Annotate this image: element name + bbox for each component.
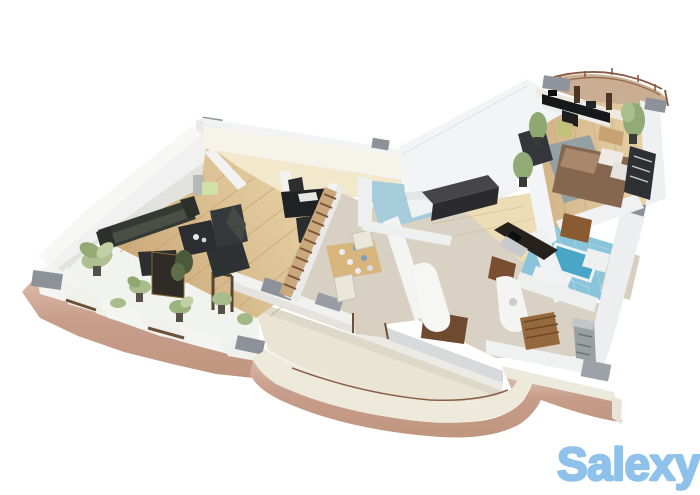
svg-text:Salexy: Salexy [557,438,700,490]
